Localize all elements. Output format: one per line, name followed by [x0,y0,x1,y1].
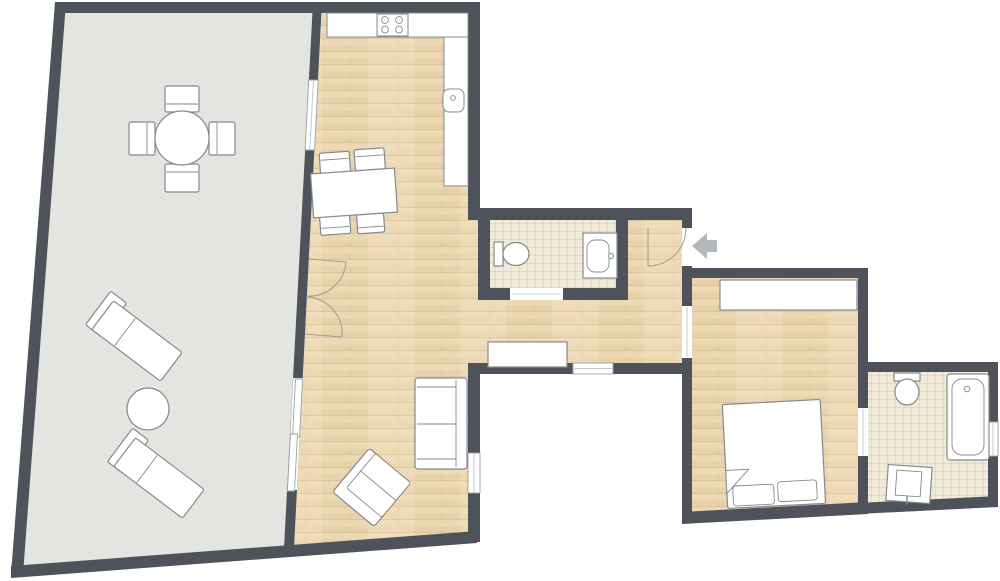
bathroom-main-bathtub [947,374,989,460]
bathroom-small-door-gap [510,288,563,300]
bathroom-small-toilet [494,242,529,266]
bedroom-door-gap [682,306,692,358]
entrance-arrow [692,233,717,259]
terrace-round-table [155,111,209,165]
terrace-side-table [127,388,169,430]
corridor-window [573,363,613,374]
sofa [415,378,467,469]
wardrobe [720,280,857,310]
sideboard [488,342,567,367]
kitchen-stove [377,14,408,36]
kitchen-sink [443,89,464,112]
bathroom-main-sink [886,465,933,507]
bed [722,399,825,508]
floorplan-svg [0,0,1000,581]
bathroom-main-toilet [894,373,920,405]
floorplan [0,0,1000,581]
living-window [468,453,480,493]
entrance-door-gap [682,228,692,266]
bathroom-main-door-gap [858,408,868,456]
bathroom-small-shower [583,233,617,278]
